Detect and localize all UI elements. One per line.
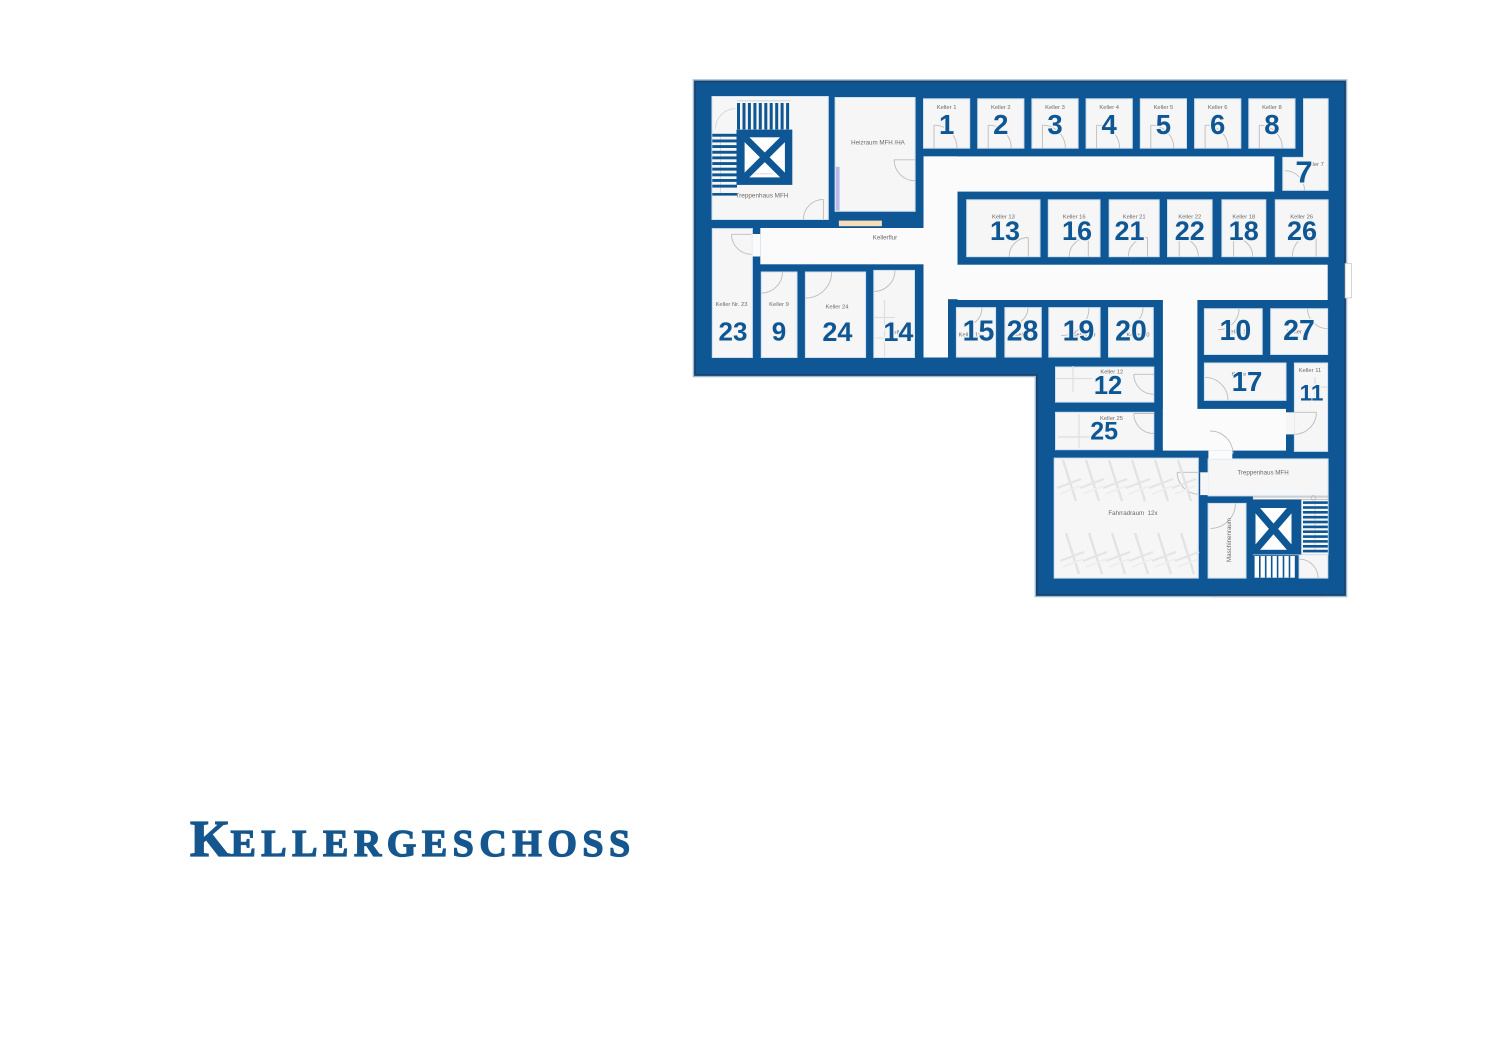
svg-text:2: 2 <box>993 109 1008 140</box>
svg-text:KELLERGESCHOSS: KELLERGESCHOSS <box>190 811 636 868</box>
svg-text:11: 11 <box>1300 380 1324 405</box>
svg-text:Keller Nr. 23: Keller Nr. 23 <box>716 302 748 308</box>
svg-text:16: 16 <box>1062 216 1092 246</box>
svg-text:12: 12 <box>1094 372 1122 400</box>
svg-text:14: 14 <box>883 317 913 347</box>
svg-text:6: 6 <box>1210 109 1225 140</box>
svg-text:Fahrradraum 12x: Fahrradraum 12x <box>1108 510 1158 517</box>
svg-text:19: 19 <box>1063 315 1095 347</box>
svg-text:1: 1 <box>939 109 954 140</box>
svg-text:Heizraum MFH /HA: Heizraum MFH /HA <box>851 140 906 147</box>
svg-text:13: 13 <box>990 216 1020 246</box>
svg-text:Treppenhaus MFH: Treppenhaus MFH <box>735 193 788 200</box>
svg-text:24: 24 <box>822 317 852 347</box>
svg-text:4: 4 <box>1102 109 1118 140</box>
svg-text:8: 8 <box>1264 109 1279 140</box>
svg-text:7: 7 <box>1295 155 1312 190</box>
svg-text:27: 27 <box>1283 315 1315 347</box>
svg-text:21: 21 <box>1114 216 1144 246</box>
svg-text:5: 5 <box>1156 109 1171 140</box>
svg-text:17: 17 <box>1232 366 1263 397</box>
svg-text:18: 18 <box>1229 216 1259 246</box>
svg-text:22: 22 <box>1175 216 1205 246</box>
svg-text:Treppenhaus MFH: Treppenhaus MFH <box>1237 470 1288 477</box>
svg-text:25: 25 <box>1090 418 1118 446</box>
svg-text:10: 10 <box>1220 315 1252 347</box>
svg-text:Maschinenraum: Maschinenraum <box>1226 518 1233 562</box>
svg-text:20: 20 <box>1115 315 1147 347</box>
svg-text:26: 26 <box>1287 216 1317 246</box>
svg-text:3: 3 <box>1047 109 1062 140</box>
svg-text:9: 9 <box>772 317 786 347</box>
svg-text:Keller 11: Keller 11 <box>1299 368 1321 374</box>
svg-text:23: 23 <box>719 317 748 347</box>
svg-text:Kellerflur: Kellerflur <box>873 235 897 242</box>
svg-text:Keller 24: Keller 24 <box>826 305 850 311</box>
svg-text:15: 15 <box>963 315 995 347</box>
svg-text:Keller 9: Keller 9 <box>769 302 789 308</box>
svg-text:28: 28 <box>1007 315 1039 347</box>
